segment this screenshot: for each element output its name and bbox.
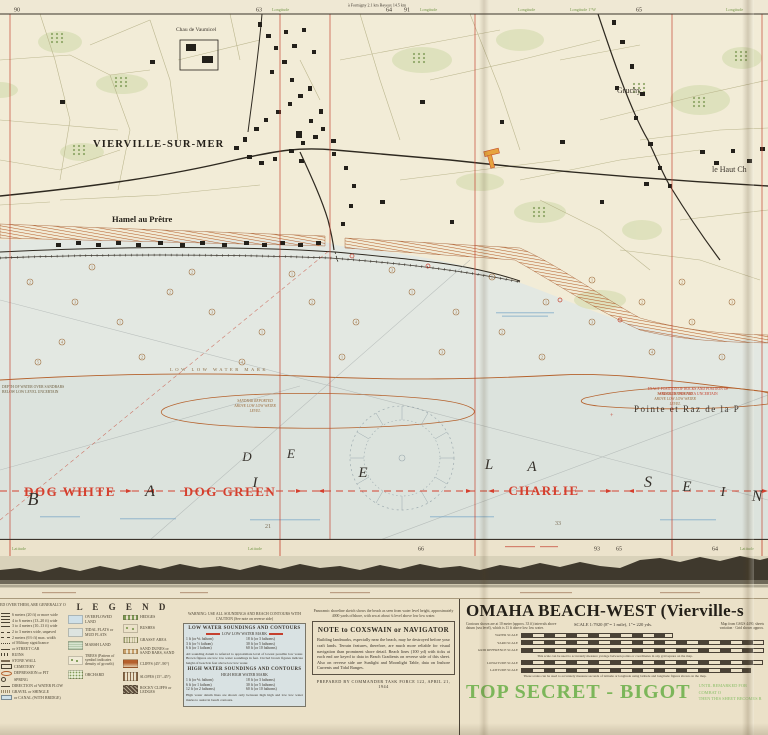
legend-item-label: 2 meters (6½ ft) max. width [12,636,56,640]
legend-swatch [68,615,83,624]
svg-text:Latitude: Latitude [248,546,262,551]
legend-symbol [1,643,10,644]
legend-item: TREES (Pattern of symbol indicates densi… [68,654,120,666]
legend-item-label: RUINS [12,653,24,657]
classification-notes: UNTIL REMARKED FOR COMBAT O THEN THIS SH… [699,683,764,701]
legend-roads-column: ED OVER THEM, ARE GENERALLY OPEN FIELDS … [0,599,66,735]
classification-stamp: TOP SECRET - BIGOT [466,681,691,704]
legend-title: L E G E N D [63,602,183,612]
svg-text:2: 2 [191,270,193,275]
svg-text:BELOW LOW LEVEL UNCERTAIN: BELOW LOW LEVEL UNCERTAIN [2,390,59,394]
legend-item-label: 3 to 4 meters (10–13 ft) wide [12,624,57,628]
beach-sector-label: DOG GREEN [184,484,277,499]
legend-item: SAND DUNES or SAND BARS, SAND [123,647,180,655]
svg-text:ABOVE LOW LOW WATER: ABOVE LOW LOW WATER [233,404,276,408]
svg-text:2: 2 [681,280,683,285]
legend-item-label: MARSH LAND [85,643,111,647]
scale-bar [521,660,763,665]
svg-text:64: 64 [386,8,392,14]
scale-bar-label: LONGITUDE SCALE [466,661,521,665]
legend-roads-list: 6 meters (20 ft) or more wide 4 to 6 met… [1,613,65,700]
scale-bar [521,648,764,653]
legend-item: 4 to 6 meters (13–20 ft) wide [1,619,65,623]
legend-item: 2 meters (6½ ft) max. width [1,636,65,640]
legend-item-label: 6 meters (20 ft) or more wide [12,613,58,617]
svg-text:2: 2 [641,300,643,305]
svg-text:2: 2 [501,330,503,335]
hamlet-label: Hamel au Prêtre [112,214,172,224]
svg-text:WRECK IN THIS AREA UNCERTAIN: WRECK IN THIS AREA UNCERTAIN [658,392,718,396]
legend-item-label: STONE WALL [12,659,36,663]
bay-letter: L [484,457,493,473]
legend-item: GRAVEL or SHINGLE [1,690,65,694]
bay-letter: E [681,479,691,495]
marginalia-panel: ED OVER THEM, ARE GENERALLY OPEN FIELDS … [0,598,768,735]
bay-letter: E [357,465,367,481]
svg-text:3: 3 [74,300,76,305]
scale-bar-row: WATER SCALE [466,633,764,638]
legend-symbol [1,626,10,627]
sounding-row: 18 ft (or 3 fathoms) [246,637,303,641]
legend-item-label: CLIFFS (45°–90°) [140,662,169,666]
svg-text:Longitude: Longitude [272,7,289,12]
low-water-note: All sounding datum is referred to approx… [186,652,303,665]
sketch-beach-midtone [0,580,768,584]
scale-bar-row: GRID REFERENCE SCALE [466,648,764,653]
legend-symbol [1,653,10,656]
legend-item-label: or STREET CAR [12,647,39,651]
legend-symbol [1,686,10,687]
svg-text:3: 3 [731,300,733,305]
legend-item-label: HEDGES [140,615,155,619]
svg-text:66: 66 [418,547,424,553]
village-label: VIERVILLE-SUR-MER [93,139,224,150]
svg-text:Longitude: Longitude [726,7,743,12]
classification-note-1: UNTIL REMARKED FOR COMBAT O [699,683,764,695]
svg-text:LEVEL: LEVEL [249,409,261,413]
sounding-row: 1 ft (or ⅙ fathom) [186,637,243,641]
svg-text:2: 2 [491,275,493,280]
legend-swatch [123,672,138,681]
svg-text:1: 1 [261,330,263,335]
legend-item: TIDAL FLATS or MUD FLATS [68,628,120,637]
legend-item-label: ROCKY CLIFFS or LEDGES [140,686,180,694]
scale-bars: WATER SCALE YARD SCALE GRID REFERENCE SC… [466,633,764,679]
lehaut-label: le Haut Ch [712,165,747,174]
legend-item: SLOPES (15°–45°) [123,672,180,681]
topographic-map: LOW LOW WATER MARK SANDBAR REPORTED ABOV… [0,0,768,540]
legend-item-label: TIDAL FLATS or MUD FLATS [85,628,120,636]
svg-text:4: 4 [355,320,357,325]
legend-symbol [1,660,10,662]
legend-item: SPRING [1,677,65,682]
depth-figure: 21 [265,524,271,530]
legend-item-label: SAND DUNES or SAND BARS, SAND [140,647,180,655]
svg-text:90: 90 [14,8,20,14]
svg-text:3: 3 [455,310,457,315]
svg-text:2: 2 [541,355,543,360]
legend-swatch [123,649,138,654]
svg-text:Longitude 1°W: Longitude 1°W [570,7,596,12]
svg-text:2: 2 [29,280,31,285]
svg-text:1: 1 [119,320,121,325]
bottom-shadow [0,723,768,735]
svg-text:1: 1 [91,265,93,270]
legend-item-label: GRAVEL or SHINGLE [12,690,49,694]
low-water-header: LOW WATER SOUNDINGS AND CONTOURS [186,626,303,631]
legend-item: or STREET CAR [1,647,65,651]
legend-item-label: 2 to 3 meters wide, unpaved [12,630,56,634]
sounding-row: 3 ft (or ½ fathom) [186,642,243,646]
legend-swatch [123,685,138,694]
bay-letter: E [286,446,295,461]
prepared-by-line: PREPARED BY COMMANDER TASK FORCE 122, AP… [312,679,455,689]
legend-land-column: OVERFLOWED LAND TIDAL FLATS or MUD FLATS… [66,599,121,735]
legend-item: MARSH LAND [68,641,120,650]
legend-land-list: OVERFLOWED LAND TIDAL FLATS or MUD FLATS… [68,615,120,679]
svg-text:EXACT POSITION OF ROCKS AND PO: EXACT POSITION OF ROCKS AND POSITION OF [648,387,729,391]
legend-veg-column: L E G E N D HEDGES BUSHES GRA [121,599,181,735]
sounding-row: 6 ft (or 1 fathom) [186,646,243,650]
svg-text:1: 1 [591,278,593,283]
legend-item: GRASSY AREA [123,637,180,643]
coxswain-body: Building landmarks, especially near the … [317,637,450,670]
coxswain-note-box: NOTE to COXSWAIN or NAVIGATOR Building l… [312,621,455,674]
bay-letter: I [252,475,259,491]
svg-text:DEPTH OF WATER OVER SANDBARS: DEPTH OF WATER OVER SANDBARS [2,385,64,389]
legend-swatch [123,615,138,620]
legend-swatch [123,637,138,643]
svg-text:4: 4 [61,340,63,345]
legend-item-label: or CANAL (WITH BRIDGE) [14,696,61,700]
legend-swatch [68,656,83,665]
high-water-sub: HIGH HIGH WATER MARK [186,673,303,677]
panorama-caption: Panoramic shoreline sketch shows the bea… [312,609,455,618]
map-sheet: LOW LOW WATER MARK SANDBAR REPORTED ABOV… [0,0,768,735]
high-water-note: High water datum lines are shown only be… [186,693,303,702]
classification-note-2: THEN THIS SHEET BECOMES R [699,696,764,702]
map-title: OMAHA BEACH-WEST (Vierville-s [466,601,764,621]
svg-text:3: 3 [441,350,443,355]
svg-text:1: 1 [545,300,547,305]
legend-item: DIRECTION of WATER FLOW [1,684,65,688]
legend-swatch [68,641,83,650]
legend-symbol [1,632,10,633]
svg-text:3: 3 [211,310,213,315]
legend-symbol [1,637,10,638]
legend-symbol [1,649,10,650]
legend-item-label: DIRECTION of WATER FLOW [12,684,63,688]
latlon-scale-note: These scales can be used to accurately m… [466,674,764,678]
legend-item: DEPRESSION or PIT [1,671,65,676]
soundings-panel: WARNING: USE ALL SOUNDINGS AND BEACH CON… [181,599,308,735]
legend-item-label: GRASSY AREA [140,638,167,642]
svg-text:93: 93 [594,547,600,553]
beach-sector-label: CHARLIE [508,483,579,498]
legend-item-label: CEMETERY [14,665,35,669]
low-water-rows: 1 ft (or ⅙ fathom)18 ft (or 3 fathoms)3 … [186,637,303,650]
classification-row: TOP SECRET - BIGOT UNTIL REMARKED FOR CO… [466,681,764,704]
scale-bar-label: LATITUDE SCALE [466,668,521,672]
svg-text:ABOVE LOW LOW WATER: ABOVE LOW LOW WATER [653,397,696,401]
legend-symbol [1,671,12,676]
legend-veg-list: HEDGES BUSHES GRASSY AREA SAND D [123,615,180,694]
scale-bar-row: YARD SCALE [466,640,764,645]
soundings-box: LOW WATER SOUNDINGS AND CONTOURS LOW LOW… [183,623,306,707]
legend-item: OVERFLOWED LAND [68,615,120,624]
sounding-row: 6 ft (or 1 fathom) [186,683,243,687]
scale-bar-label: GRID REFERENCE SCALE [466,648,521,652]
legend-item: CLIFFS (45°–90°) [123,659,180,668]
legend-item: 6 meters (20 ft) or more wide [1,613,65,617]
coxswain-heading: NOTE to COXSWAIN or NAVIGATOR [317,626,450,634]
svg-text:4: 4 [651,350,653,355]
bay-letter: N [751,488,764,505]
legend-symbol [1,619,10,623]
svg-text:1: 1 [411,290,413,295]
deep-water-area [0,374,768,540]
svg-text:63: 63 [256,8,262,14]
legend-symbol [1,690,10,693]
legend-item-label: OVERFLOWED LAND [85,615,120,623]
legend-item: STONE WALL [1,659,65,663]
svg-text:65: 65 [636,8,642,14]
legend-item-label: SPRING [14,678,28,682]
legend-symbol [1,677,6,682]
svg-text:Latitude: Latitude [740,546,754,551]
legend-item-label: 4 to 6 meters (13–20 ft) wide [12,619,57,623]
legend-item: ROCKY CLIFFS or LEDGES [123,685,180,694]
legend-item: of Military significance [1,641,65,645]
legend-item: HEDGES [123,615,180,620]
legend-swatch [68,670,83,679]
legend-swatch [123,659,138,668]
legend-item-label: BUSHES [140,626,155,630]
legend-item-label: ORCHARD [85,673,104,677]
sounding-row: 30 ft (or 5 fathoms) [246,642,303,646]
svg-text:3: 3 [591,320,593,325]
bay-letter: A [144,483,155,500]
source-line-2: variation · Grid shown approx. [668,626,764,630]
svg-text:à Formigny 2.1 km Bayeux: à Formigny 2.1 km Bayeux 14.5 km [348,3,407,8]
sounding-row: 60 ft (or 10 fathoms) [246,646,303,650]
sounding-row: 60 ft (or 10 fathoms) [246,687,303,691]
legend-symbol [1,664,12,669]
svg-text:Longitude: Longitude [420,7,437,12]
svg-text:5: 5 [37,360,39,365]
bay-letter: B [28,489,39,509]
scale-bar [521,640,764,645]
soundings-warning: WARNING: USE ALL SOUNDINGS AND BEACH CON… [183,612,306,621]
legend-item: 2 to 3 meters wide, unpaved [1,630,65,634]
coxswain-panel: Panoramic shoreline sketch shows the bea… [308,599,459,735]
scale-bar-row: LATITUDE SCALE [466,668,764,673]
scale-bar-row: LONGITUDE SCALE [466,660,764,665]
svg-text:64: 64 [712,547,718,553]
svg-text:Longitude: Longitude [518,7,535,12]
legend-item: 3 to 4 meters (10–13 ft) wide [1,624,65,628]
bay-letter: A [526,459,537,475]
sounding-row: 12 ft (or 2 fathoms) [186,687,243,691]
bay-letter: S [644,474,652,491]
low-low-water-label: LOW LOW WATER MARK [170,367,268,372]
svg-text:2: 2 [311,300,313,305]
legend-symbol [1,695,12,700]
svg-text:2: 2 [169,290,171,295]
depth-uncertain-note: DEPTH OF WATER OVER SANDBARS BELOW LOW L… [2,385,64,394]
contours-note: Contours shown are at 10 meter (approx. … [466,622,558,631]
svg-text:3: 3 [391,268,393,273]
low-water-sub: LOW LOW WATER MARK [186,632,303,636]
panoramic-shoreline-sketch: Latitude Latitude 66 93 65 64 Latitude [0,540,768,598]
high-water-rows: 1 ft (or ⅙ fathom)18 ft (or 3 fathoms)6 … [186,678,303,691]
legend-swatch [68,628,83,637]
svg-text:SANDBAR REPORTED: SANDBAR REPORTED [237,399,273,403]
svg-text:1: 1 [721,355,723,360]
legend-item-label: of Military significance [12,641,49,645]
sounding-row: 18 ft (or 3 fathoms) [246,678,303,682]
legend-item: BUSHES [123,624,180,633]
legend-item-label: DEPRESSION or PIT [14,671,49,675]
red-line-mark [269,633,283,635]
high-water-header: HIGH WATER SOUNDINGS AND CONTOURS [186,667,303,672]
svg-text:4: 4 [241,360,243,365]
bay-letter: D [241,449,252,464]
legend-item: ORCHARD [68,670,120,679]
pointe-label: Pointe et Raz de la P [634,404,740,414]
title-subrow: Contours shown are at 10 meter (approx. … [466,622,764,631]
svg-text:2: 2 [141,355,143,360]
rocks-uncertain-note: EXACT POSITION OF ROCKS AND POSITION OF … [648,387,729,396]
map-source-note: Map from GSGS 4490, sheets variation · G… [668,622,764,631]
scale-bar-label: YARD SCALE [466,641,521,645]
legend-swatch [123,624,138,633]
title-block: OMAHA BEACH-WEST (Vierville-s Contours s… [459,599,768,735]
scale-bar-label: WATER SCALE [466,633,521,637]
svg-text:1: 1 [291,272,293,277]
legend-item: RUINS [1,653,65,657]
legend-symbol [1,613,10,617]
sounding-row: 1 ft (or ⅙ fathom) [186,678,243,682]
legend-item: or CANAL (WITH BRIDGE) [1,695,65,700]
red-line-mark [206,633,220,635]
svg-text:65: 65 [616,547,622,553]
scale-bar [521,668,751,673]
legend-item-label: SLOPES (15°–45°) [140,675,170,679]
depth-figure: 33 [555,521,561,527]
sounding-row: 30 ft (or 5 fathoms) [246,683,303,687]
legend-header-note: ED OVER THEM, ARE GENERALLY OPEN FIELDS [0,603,66,607]
chateau-label: Chau de Vaumicel [176,27,217,33]
legend-item: CEMETERY [1,664,65,669]
scale-bar [521,633,673,638]
svg-text:1: 1 [341,355,343,360]
svg-text:1: 1 [691,320,693,325]
scale-text: SCALE 1:7920 (8″= 1 mile), 1″= 220 yds. [558,622,668,631]
gruchy-label: Gruchy [617,86,641,95]
svg-text:Latitude: Latitude [12,546,26,551]
legend-item-label: TREES (Pattern of symbol indicates densi… [85,654,120,666]
svg-text:91: 91 [404,8,410,14]
grid-scale-note: This scale can be used to accurately mea… [466,654,764,658]
